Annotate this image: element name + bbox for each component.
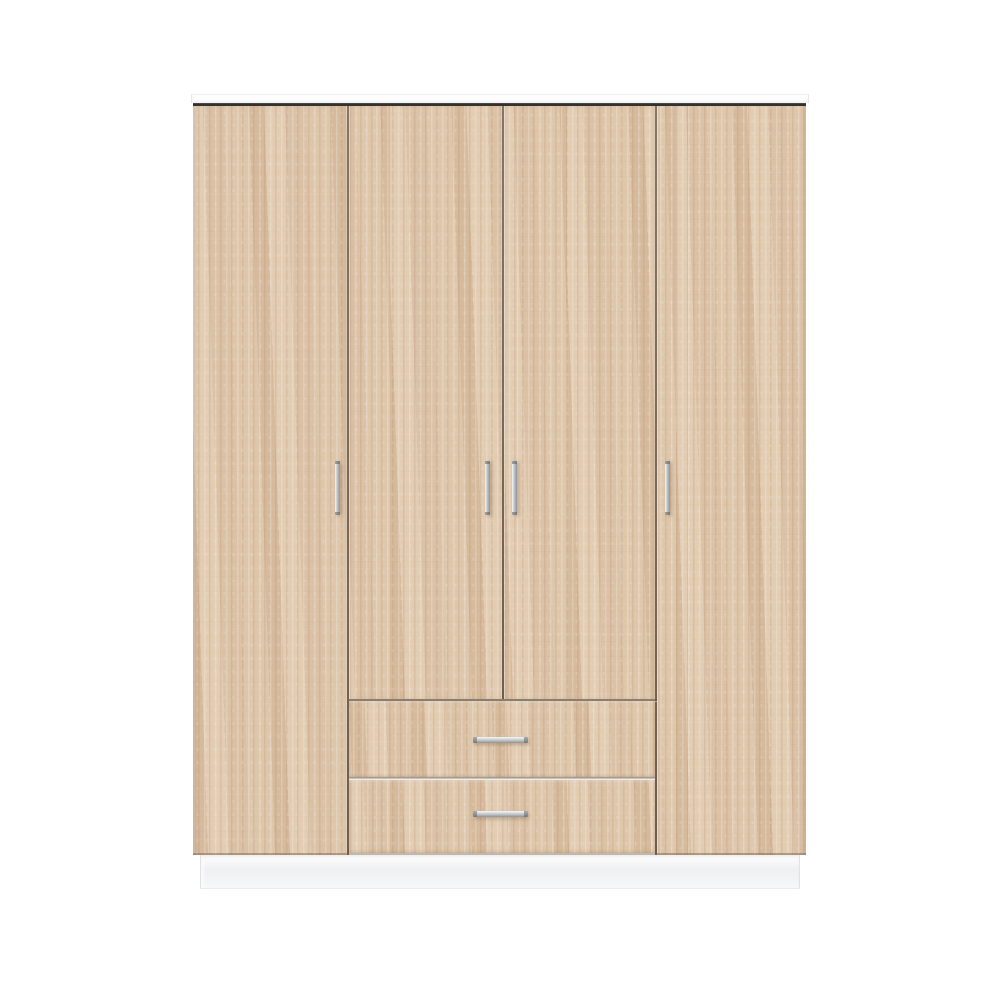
door-1-handle: [335, 461, 340, 515]
door-gap-center: [502, 106, 504, 699]
door-gap-right: [655, 106, 657, 855]
base-plinth: [200, 855, 800, 889]
wardrobe-door-2: [349, 106, 502, 699]
wardrobe-door-1: [193, 106, 347, 855]
drawer-2-handle: [473, 811, 528, 817]
wardrobe-door-3: [504, 106, 655, 699]
wardrobe: [193, 94, 806, 889]
door-3-handle: [512, 461, 517, 515]
wardrobe-top-panel: [191, 94, 809, 103]
door-2-handle: [485, 461, 490, 515]
product-photo-canvas: [0, 0, 1000, 1000]
wardrobe-door-4: [657, 106, 806, 855]
door-4-handle: [665, 461, 670, 515]
drawer-1-handle: [473, 737, 528, 743]
